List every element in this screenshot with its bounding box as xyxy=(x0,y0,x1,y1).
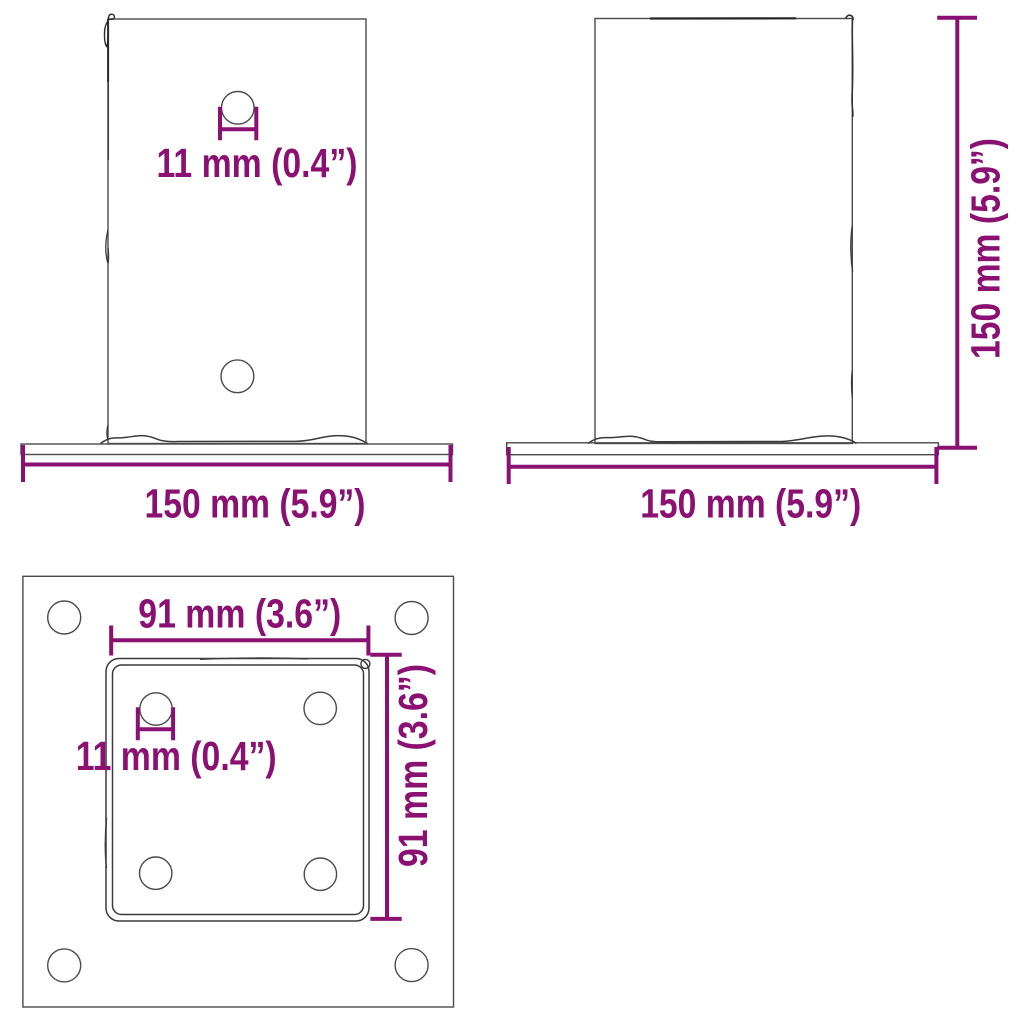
svg-text:150 mm (5.9”): 150 mm (5.9”) xyxy=(145,481,366,527)
svg-text:91 mm (3.6”): 91 mm (3.6”) xyxy=(138,591,341,637)
svg-text:11 mm (0.4”): 11 mm (0.4”) xyxy=(157,140,358,186)
svg-text:150 mm (5.9”): 150 mm (5.9”) xyxy=(640,481,861,527)
svg-text:91 mm (3.6”): 91 mm (3.6”) xyxy=(390,664,436,867)
svg-text:11 mm (0.4”): 11 mm (0.4”) xyxy=(76,733,277,779)
svg-text:150 mm (5.9”): 150 mm (5.9”) xyxy=(963,138,1009,359)
